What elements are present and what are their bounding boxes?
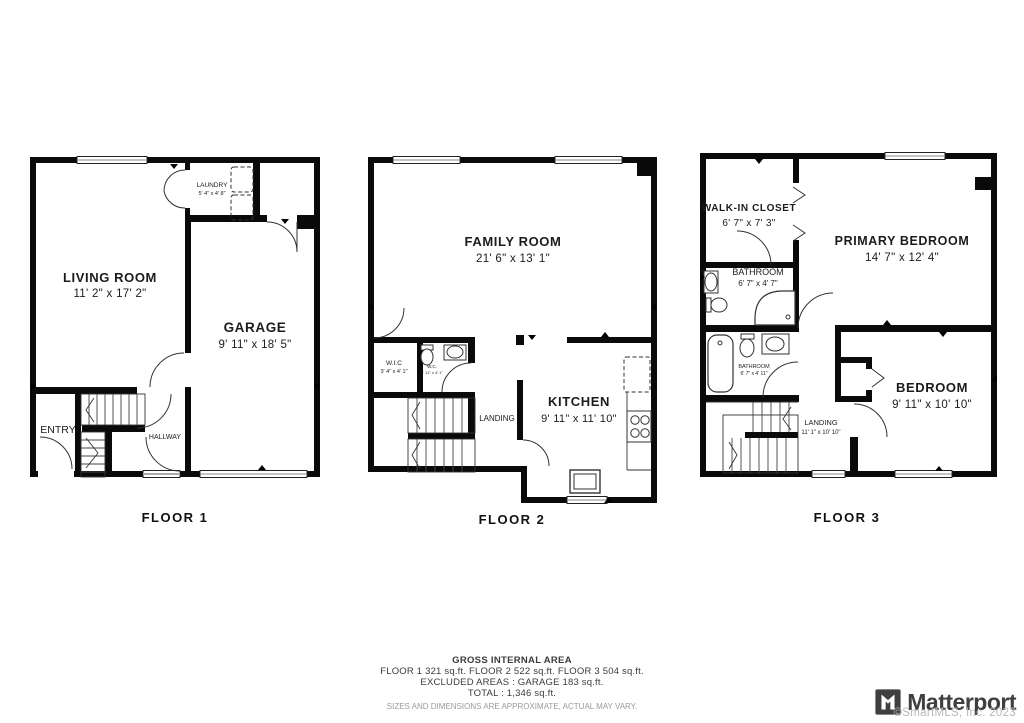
garage-label: GARAGE (224, 320, 287, 335)
disclaimer-text: SIZES AND DIMENSIONS ARE APPROXIMATE, AC… (380, 701, 644, 712)
entry-label: ENTRY (40, 424, 75, 436)
toilet-icon (706, 298, 727, 312)
stove-icon (627, 411, 651, 442)
floor-3-walls (700, 153, 997, 477)
laundry-double-door-arc (164, 191, 185, 208)
garage-door-arc (267, 222, 297, 252)
kitchen-dims: 9' 11" x 11' 10" (541, 413, 617, 425)
floor-2-walls (368, 157, 657, 503)
closet-bifold-icon (793, 187, 805, 203)
copyright-text: ©SmartMLS, Inc. 2023 (846, 707, 1016, 719)
washer-dryer-icon (231, 167, 253, 220)
living-room-dims: 11' 2" x 17' 2" (73, 288, 146, 300)
bathtub-icon (708, 335, 733, 392)
stairs-icon (81, 394, 145, 477)
bedroom-door-arc (854, 404, 887, 437)
garage-dims: 9' 11" x 18' 5" (218, 339, 291, 351)
bathroom-upper-dims: 6' 7" x 4' 7" (738, 279, 778, 288)
window-seat-icon (570, 470, 600, 493)
bathroom-upper-label: BATHROOM (732, 267, 783, 277)
bathroom-lower-label: BATHROOM (738, 364, 770, 370)
landing-dims: 11' 1" x 10' 10" (801, 430, 840, 436)
wc-dims: 3' 11" x 4' 1" (421, 370, 443, 375)
bedroom-dims: 9' 11" x 10' 10" (892, 399, 972, 411)
bedroom-label: BEDROOM (896, 380, 968, 395)
floor-areas-line: FLOOR 1 321 sq.ft. FLOOR 2 522 sq.ft. FL… (380, 666, 644, 677)
primary-bedroom-door-arc (798, 293, 833, 328)
landing-label: LANDING (804, 418, 838, 427)
living-room-label: LIVING ROOM (63, 270, 157, 285)
primary-bedroom-dims: 14' 7" x 12' 4" (865, 252, 939, 264)
closet-bifold-icon (872, 369, 884, 387)
wc-label: W.C. (427, 364, 437, 369)
family-room-dims: 21' 6" x 13' 1" (476, 253, 550, 265)
floor-1-caption: FLOOR 1 (142, 510, 209, 525)
sink-icon (704, 271, 718, 293)
laundry-label: LAUNDRY (197, 182, 229, 189)
living-room-door-arc (150, 353, 184, 387)
primary-bedroom-label: PRIMARY BEDROOM (835, 234, 970, 248)
floorplan-page: LIVING ROOM 11' 2" x 17' 2" GARAGE 9' 11… (0, 0, 1024, 723)
front-door-arc (146, 437, 180, 471)
shower-icon (755, 291, 795, 325)
floor-1-plan: LIVING ROOM 11' 2" x 17' 2" GARAGE 9' 11… (22, 148, 332, 488)
bathroom-lower-dims: 6' 7" x 4' 11" (740, 371, 767, 377)
hallway-door-arc (137, 394, 171, 428)
kitchen-label: KITCHEN (548, 394, 610, 409)
toilet-icon (421, 345, 433, 365)
closet-bifold-icon (793, 225, 805, 241)
laundry-dims: 5' 4" x 4' 8" (198, 191, 225, 197)
wc-door-arc (442, 363, 471, 392)
kitchen-door-arc (523, 440, 549, 466)
floor-3-plan: WALK-IN CLOSET 6' 7" x 7' 3" PRIMARY BED… (695, 145, 1000, 485)
landing-label: LANDING (479, 414, 515, 423)
floor-2-caption: FLOOR 2 (479, 512, 546, 527)
hallway-label: HALLWAY (149, 434, 181, 441)
walk-in-closet-dims: 6' 7" x 7' 3" (722, 218, 775, 229)
toilet-icon (740, 334, 754, 357)
excluded-areas-line: EXCLUDED AREAS : GARAGE 183 sq.ft. (380, 677, 644, 688)
gross-area-title: GROSS INTERNAL AREA (380, 655, 644, 666)
floor-2-windows (393, 157, 622, 504)
floor-3-windows (812, 153, 952, 478)
laundry-double-door-arc (164, 170, 185, 191)
refrigerator-icon (624, 357, 650, 392)
sink-icon (444, 345, 466, 360)
family-room-door-arc (374, 308, 404, 338)
family-room-label: FAMILY ROOM (465, 234, 562, 249)
sink-icon (762, 334, 789, 354)
area-summary: GROSS INTERNAL AREA FLOOR 1 321 sq.ft. F… (380, 655, 644, 712)
wic-dims: 3' 4" x 4' 1" (380, 369, 407, 375)
floor-2-plan: FAMILY ROOM 21' 6" x 13' 1" KITCHEN 9' 1… (360, 145, 665, 510)
walk-in-closet-door-arc (737, 231, 771, 265)
dimension-marker (369, 303, 656, 503)
walk-in-closet-label: WALK-IN CLOSET (702, 203, 797, 214)
entry-door-arc (40, 437, 72, 469)
floor-3-caption: FLOOR 3 (814, 510, 881, 525)
total-area-line: TOTAL : 1,346 sq.ft. (380, 688, 644, 699)
wic-label: W.I.C (386, 360, 402, 367)
branding-block: Matterport ©SmartMLS, Inc. 2023 (846, 688, 1016, 719)
